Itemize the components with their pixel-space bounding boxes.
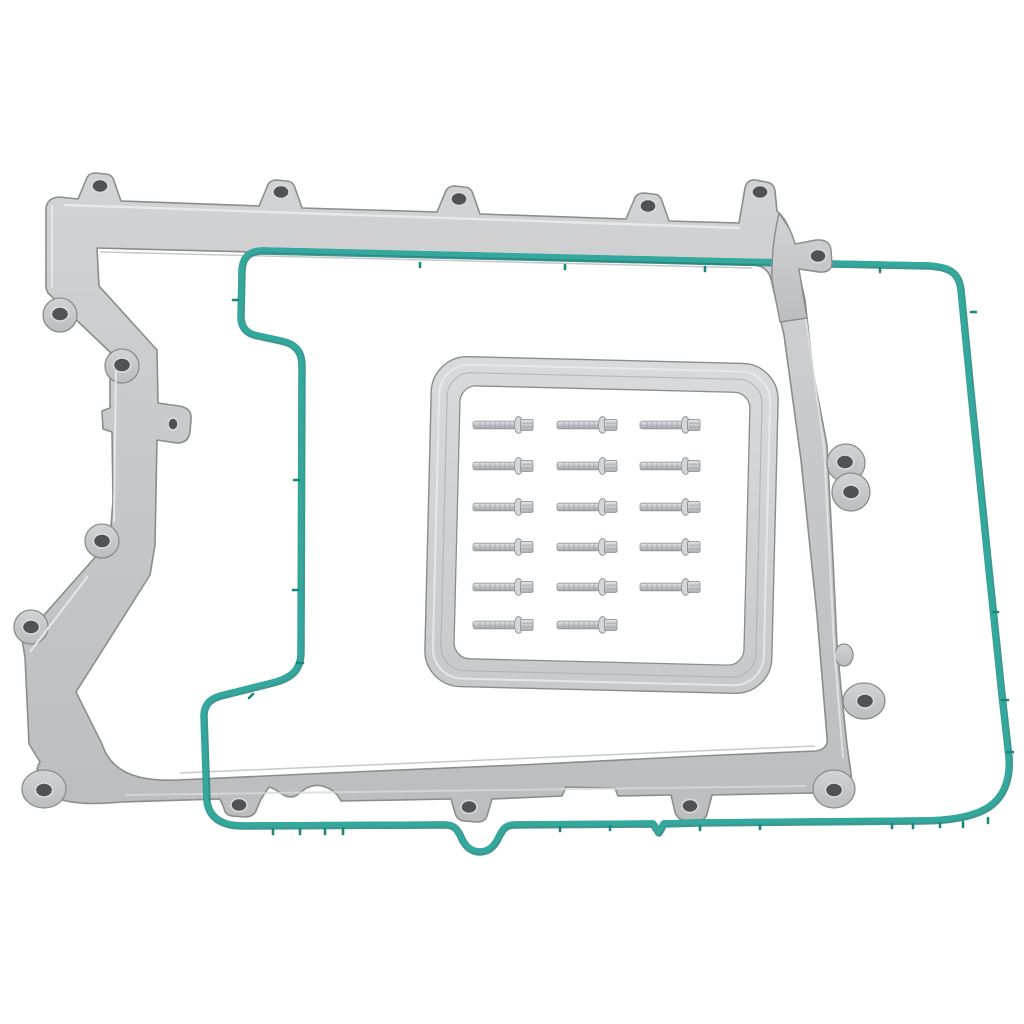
- mounting-hole: [461, 801, 477, 814]
- mounting-hole: [682, 800, 698, 813]
- side-nub: [835, 644, 853, 666]
- mounting-hole: [23, 620, 40, 634]
- mounting-hole: [810, 250, 826, 263]
- mounting-hole: [640, 200, 656, 213]
- product-photo: [0, 0, 1024, 1024]
- mounting-hole: [114, 358, 131, 372]
- mounting-hole: [36, 783, 53, 797]
- mounting-hole: [94, 534, 111, 548]
- mounting-hole: [752, 186, 768, 199]
- mounting-hole: [273, 186, 289, 199]
- mounting-hole: [843, 485, 860, 499]
- mounting-hole: [168, 418, 178, 430]
- mounting-hole: [92, 180, 108, 193]
- inner-aluminum-frame: [424, 356, 779, 694]
- mounting-hole: [857, 694, 874, 708]
- mounting-hole: [826, 783, 843, 797]
- mounting-hole: [231, 799, 247, 812]
- mounting-hole: [52, 307, 69, 321]
- mounting-hole: [451, 193, 467, 206]
- mounting-hole: [837, 455, 854, 469]
